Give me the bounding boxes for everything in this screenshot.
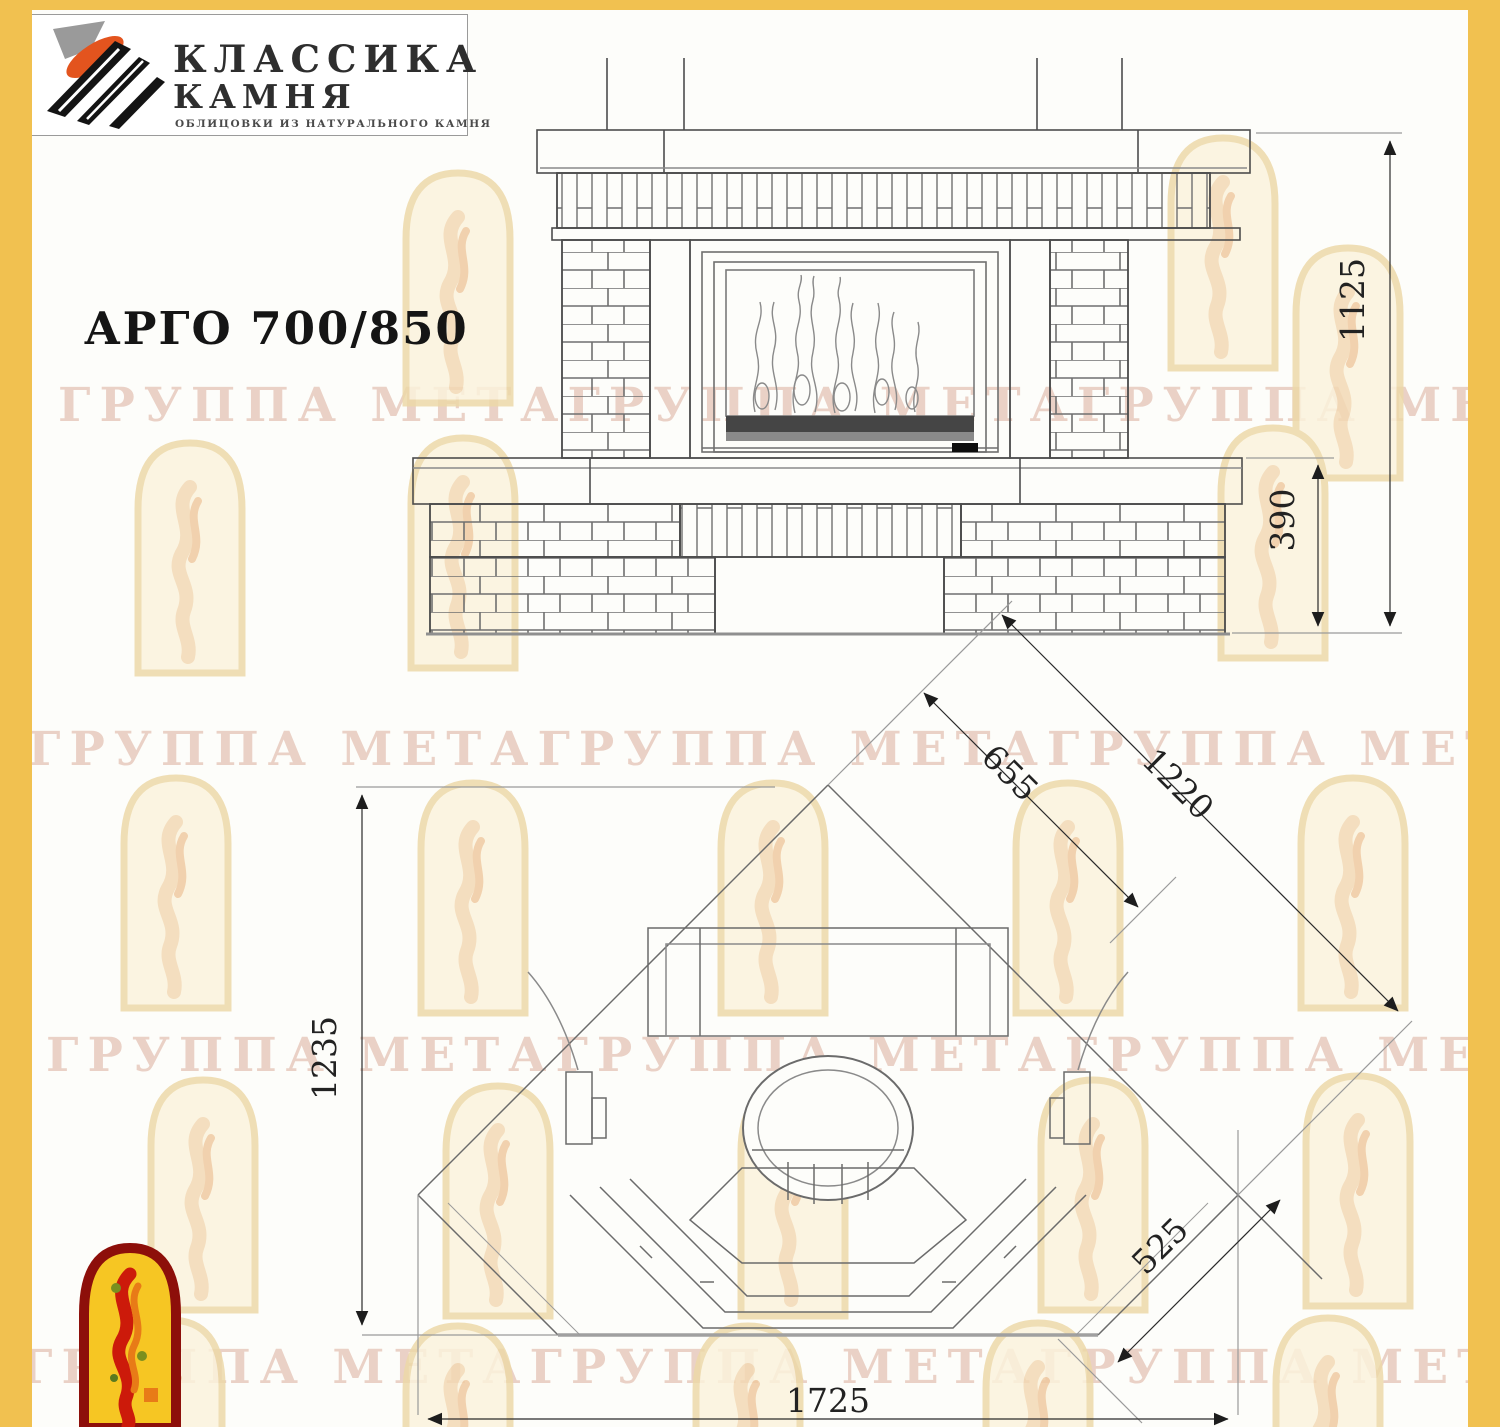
dim-label-front-width: 1725 [786, 1381, 870, 1420]
firebox-front [690, 240, 1010, 458]
dim-label-depth-left: 1235 [305, 1016, 344, 1100]
firebox-handle [952, 443, 978, 452]
dim-label-wall-right: 1220 [1135, 740, 1222, 827]
spec-sheet-page: ГРУППА МЕТАГРУППА МЕТАГРУППА МЕТА ГРУППА… [0, 0, 1500, 1427]
firebox-log-retainer [726, 416, 974, 432]
brand-logo-icon [39, 19, 169, 131]
meta-arch-logo [78, 1238, 182, 1427]
mantel-shelf [537, 130, 1250, 173]
chimney-lines [607, 58, 1122, 130]
page-title: АРГО 700/850 [84, 302, 469, 355]
brand-logo: КЛАССИКА КАМНЯ ОБЛИЦОВКИ ИЗ НАТУРАЛЬНОГО… [30, 14, 468, 136]
flames [753, 275, 919, 413]
yellow-frame-top [0, 0, 1500, 10]
mantel-frieze-tiles [552, 173, 1240, 240]
plan-view-drawing [418, 785, 1322, 1335]
yellow-frame-right [1468, 0, 1500, 1427]
technical-drawing-canvas: 1125 390 [0, 0, 1500, 1427]
corner-walls [418, 785, 1322, 1279]
brand-name-line1: КЛАССИКА [173, 37, 483, 81]
base-plinth [426, 504, 1230, 634]
dim-label-hearth-height: 390 [1263, 489, 1302, 552]
yellow-frame-left [0, 0, 32, 1427]
base-niche [715, 557, 944, 634]
brand-tagline: ОБЛИЦОВКИ ИЗ НАТУРАЛЬНОГО КАМНЯ [175, 118, 492, 130]
left-brick-pier [562, 240, 690, 458]
dim-label-total-height: 1125 [1333, 258, 1372, 342]
right-brick-pier [1010, 240, 1128, 458]
hearth-shelf [413, 458, 1242, 504]
brand-name-line2: КАМНЯ [173, 77, 357, 116]
front-elevation-drawing [413, 58, 1250, 634]
